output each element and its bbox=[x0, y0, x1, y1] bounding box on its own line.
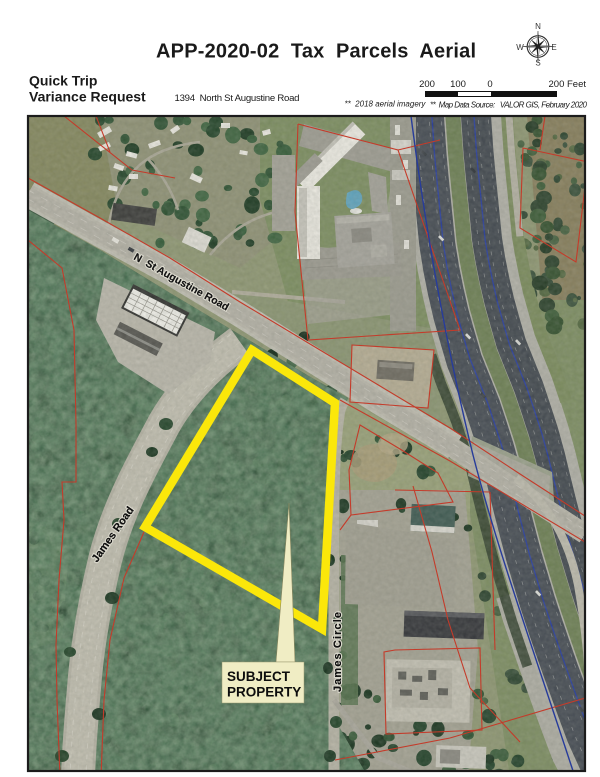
svg-text:E: E bbox=[551, 43, 556, 52]
svg-text:SUBJECT: SUBJECT bbox=[227, 669, 291, 684]
svg-text:W: W bbox=[516, 43, 524, 52]
svg-text:APP-2020-02 Tax Parcels Aer: APP-2020-02 Tax Parcels Aerial bbox=[156, 41, 476, 63]
svg-text:Variance Request: Variance Request bbox=[29, 89, 146, 105]
svg-text:Quick Trip: Quick Trip bbox=[29, 73, 97, 89]
svg-text:200 Feet: 200 Feet bbox=[549, 79, 587, 90]
svg-text:200: 200 bbox=[419, 79, 435, 90]
svg-text:** 2018 aerial imagery: ** 2018 aerial imagery bbox=[345, 100, 427, 109]
svg-text:1394 North St Augustine Road: 1394 North St Augustine Road bbox=[175, 93, 300, 104]
svg-text:100: 100 bbox=[450, 79, 466, 90]
svg-text:** Map Data Source: VALOR G: ** Map Data Source: VALOR GIS, February … bbox=[430, 101, 588, 110]
svg-text:0: 0 bbox=[487, 79, 492, 90]
svg-text:PROPERTY: PROPERTY bbox=[227, 685, 301, 700]
svg-text:James Circle: James Circle bbox=[332, 611, 344, 692]
svg-text:S: S bbox=[535, 59, 540, 68]
svg-text:N: N bbox=[535, 22, 541, 31]
